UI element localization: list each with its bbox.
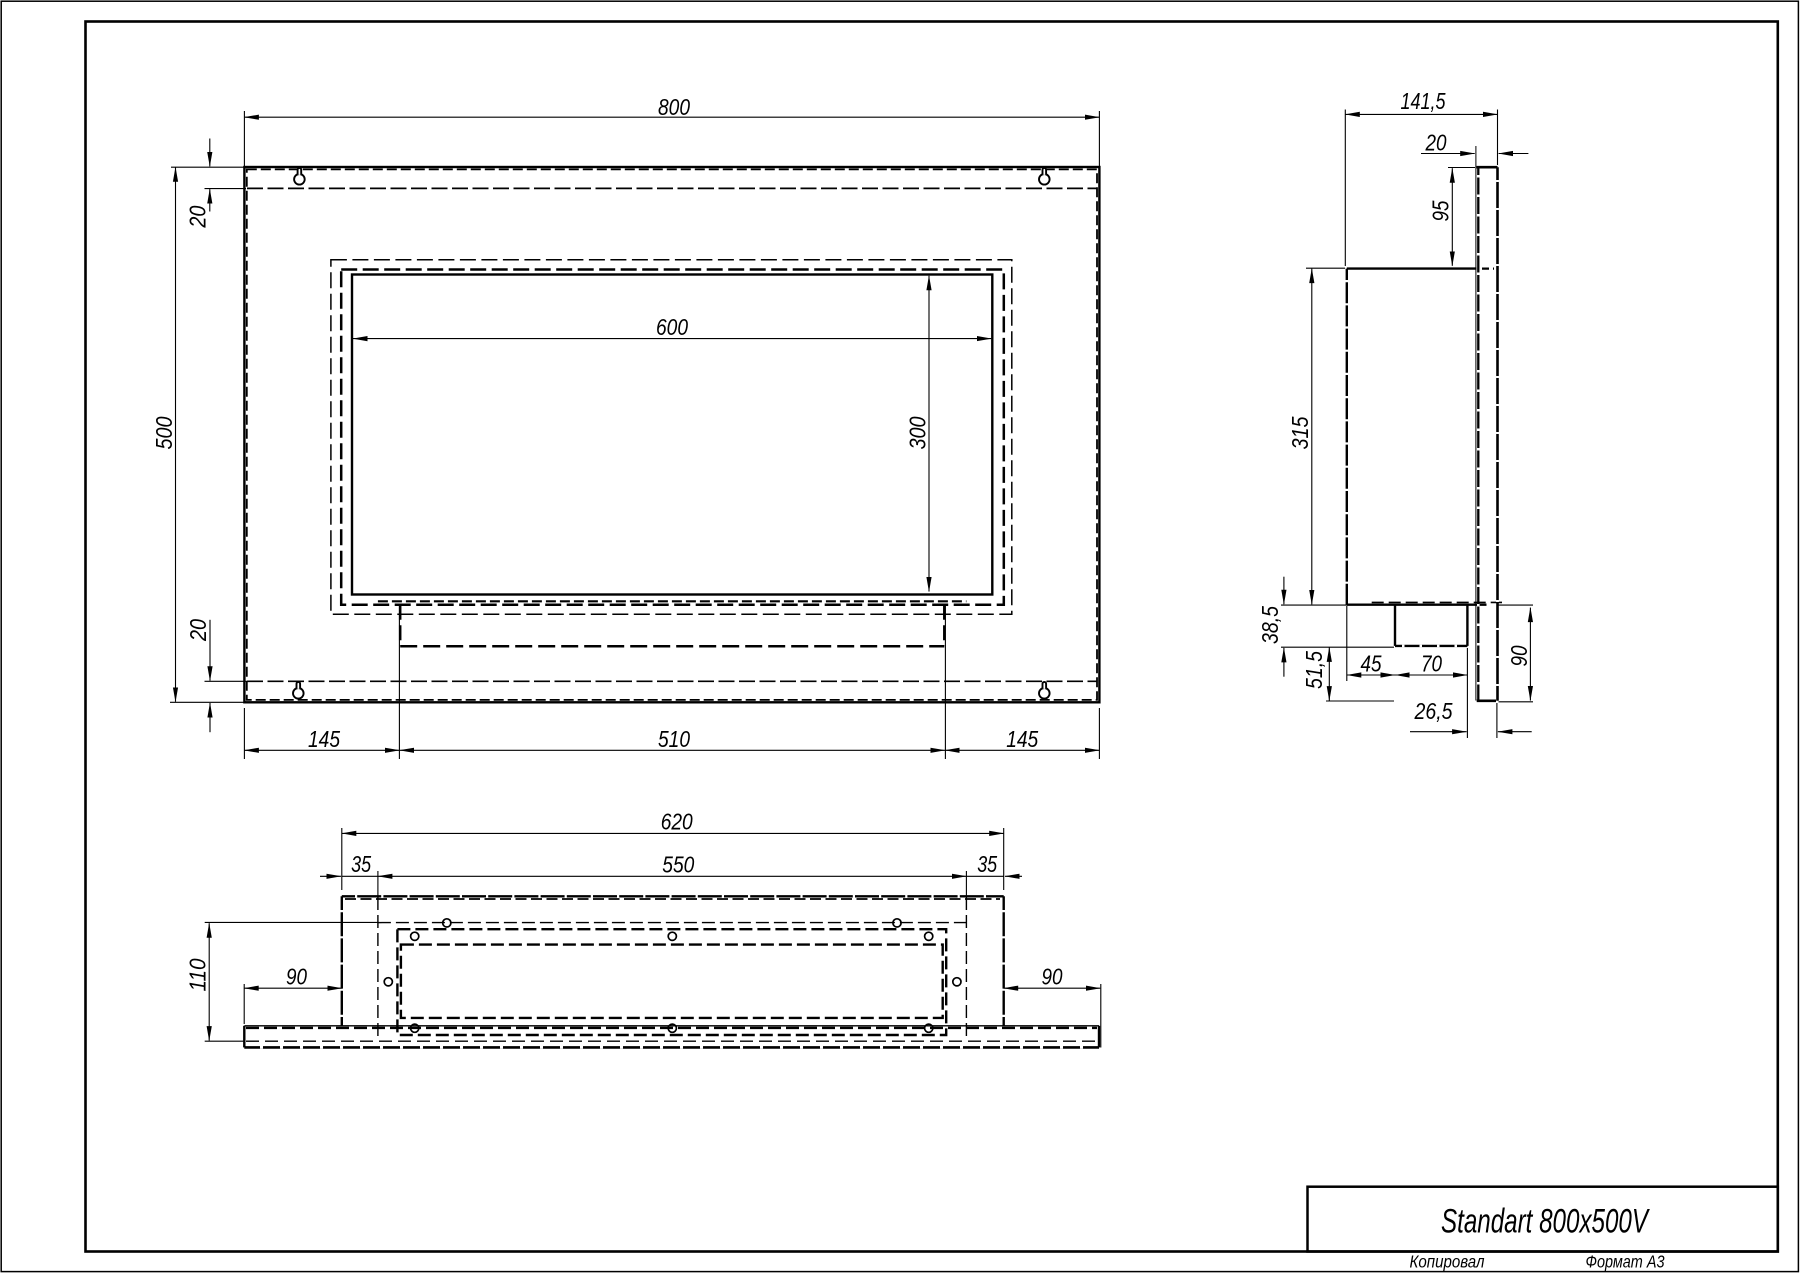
svg-text:315: 315 xyxy=(1287,416,1313,449)
svg-text:51,5: 51,5 xyxy=(1301,651,1327,689)
svg-text:35: 35 xyxy=(977,851,997,877)
svg-text:70: 70 xyxy=(1421,651,1442,677)
svg-text:620: 620 xyxy=(661,809,693,835)
svg-text:90: 90 xyxy=(286,964,307,990)
svg-text:Копировал: Копировал xyxy=(1410,1252,1485,1272)
svg-text:145: 145 xyxy=(1006,726,1038,752)
svg-text:20: 20 xyxy=(185,619,211,642)
svg-text:141,5: 141,5 xyxy=(1401,88,1446,114)
svg-text:510: 510 xyxy=(658,726,690,752)
svg-text:35: 35 xyxy=(351,851,371,877)
svg-text:300: 300 xyxy=(904,416,930,449)
svg-text:110: 110 xyxy=(185,958,211,991)
svg-text:800: 800 xyxy=(658,94,690,120)
svg-text:600: 600 xyxy=(656,314,688,340)
svg-text:95: 95 xyxy=(1428,200,1454,221)
svg-text:20: 20 xyxy=(185,205,211,228)
svg-text:550: 550 xyxy=(662,852,694,878)
svg-text:Standart 800x500V: Standart 800x500V xyxy=(1441,1203,1650,1241)
svg-text:145: 145 xyxy=(308,726,340,752)
svg-text:Формат А3: Формат А3 xyxy=(1586,1252,1665,1272)
svg-text:45: 45 xyxy=(1361,651,1382,677)
svg-text:500: 500 xyxy=(151,416,177,449)
svg-text:38,5: 38,5 xyxy=(1257,606,1283,644)
svg-text:90: 90 xyxy=(1506,645,1532,666)
svg-text:90: 90 xyxy=(1042,964,1063,990)
svg-text:26,5: 26,5 xyxy=(1414,698,1453,724)
svg-text:20: 20 xyxy=(1425,129,1447,155)
